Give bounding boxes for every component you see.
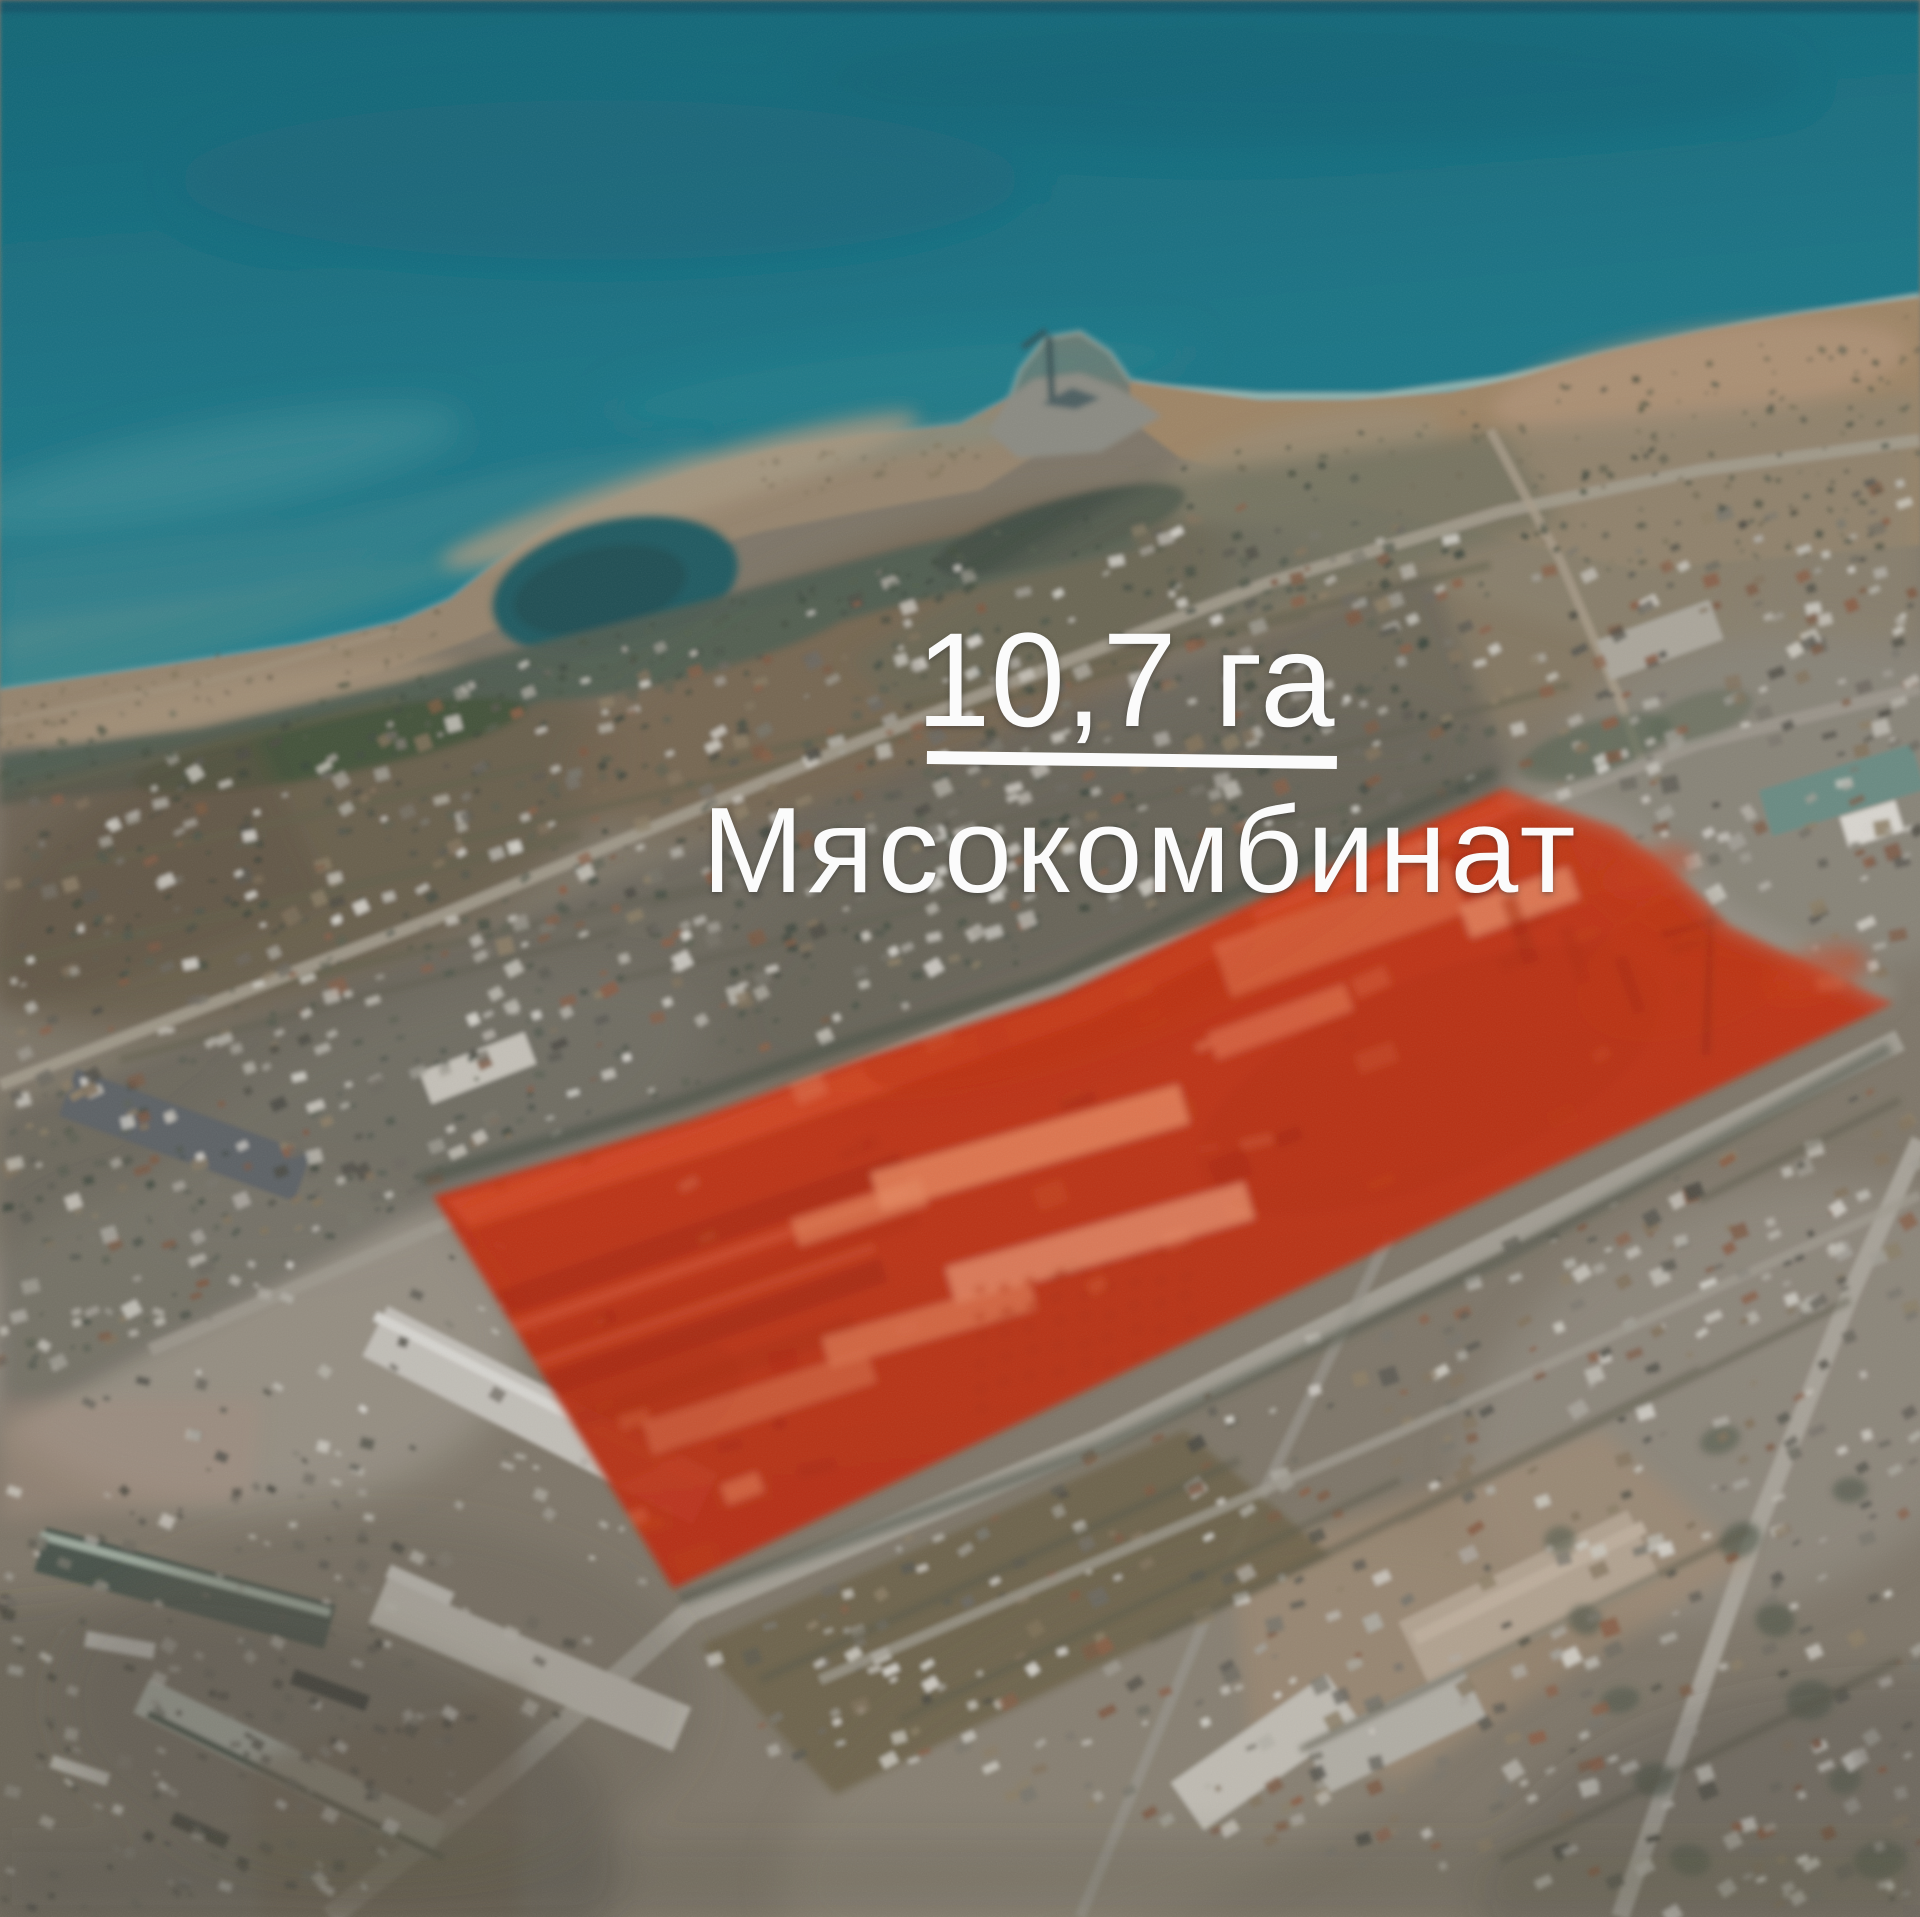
svg-text:10,7 га: 10,7 га [916, 606, 1335, 755]
svg-text:Мясокомбинат: Мясокомбинат [702, 782, 1579, 918]
